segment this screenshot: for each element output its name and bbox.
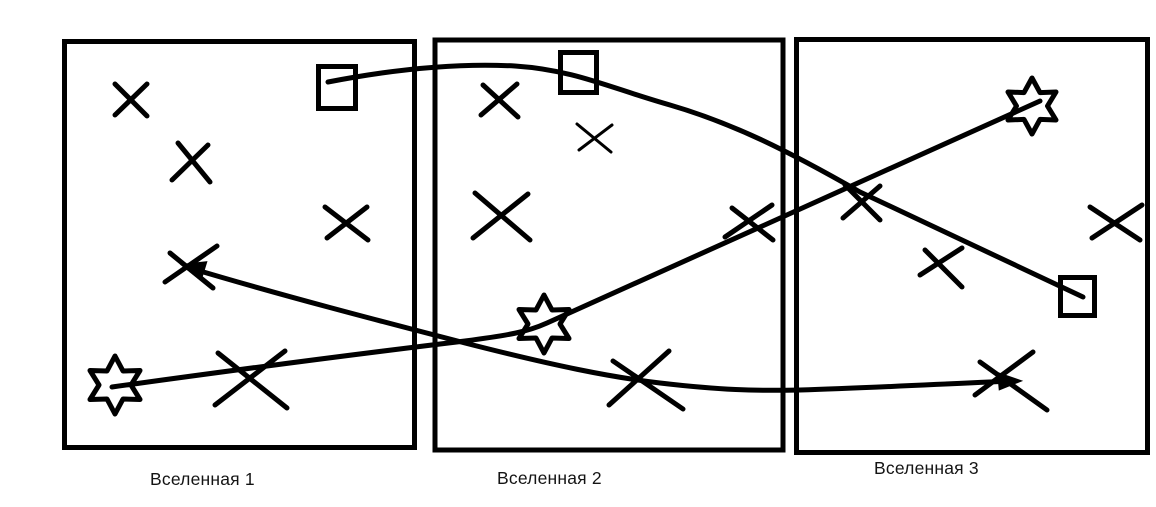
cross: [481, 84, 518, 117]
universe-1-objects: [90, 67, 368, 415]
cross: [115, 84, 147, 116]
universe-3-label: Вселенная 3: [874, 458, 979, 479]
universe-1-label: Вселенная 1: [150, 469, 255, 490]
squares-link-line: [328, 65, 1083, 297]
cross: [165, 246, 217, 288]
cross: [920, 248, 962, 287]
stars-link-line: [112, 101, 1040, 387]
cross: [1090, 205, 1142, 240]
universe-2-label: Вселенная 2: [497, 468, 602, 489]
cross: [325, 207, 368, 240]
universe-1-square: [319, 67, 356, 109]
modal-universes-diagram: Вселенная 1 Вселенная 2 Вселенная 3: [0, 0, 1156, 507]
crosses-link-line: [190, 268, 1012, 390]
universe-3-objects: [843, 78, 1142, 410]
cross: [215, 351, 287, 408]
cross: [577, 124, 612, 152]
cross: [172, 143, 210, 182]
cross: [473, 193, 530, 240]
diagram-canvas: [0, 0, 1156, 507]
connection-lines: [112, 65, 1083, 390]
